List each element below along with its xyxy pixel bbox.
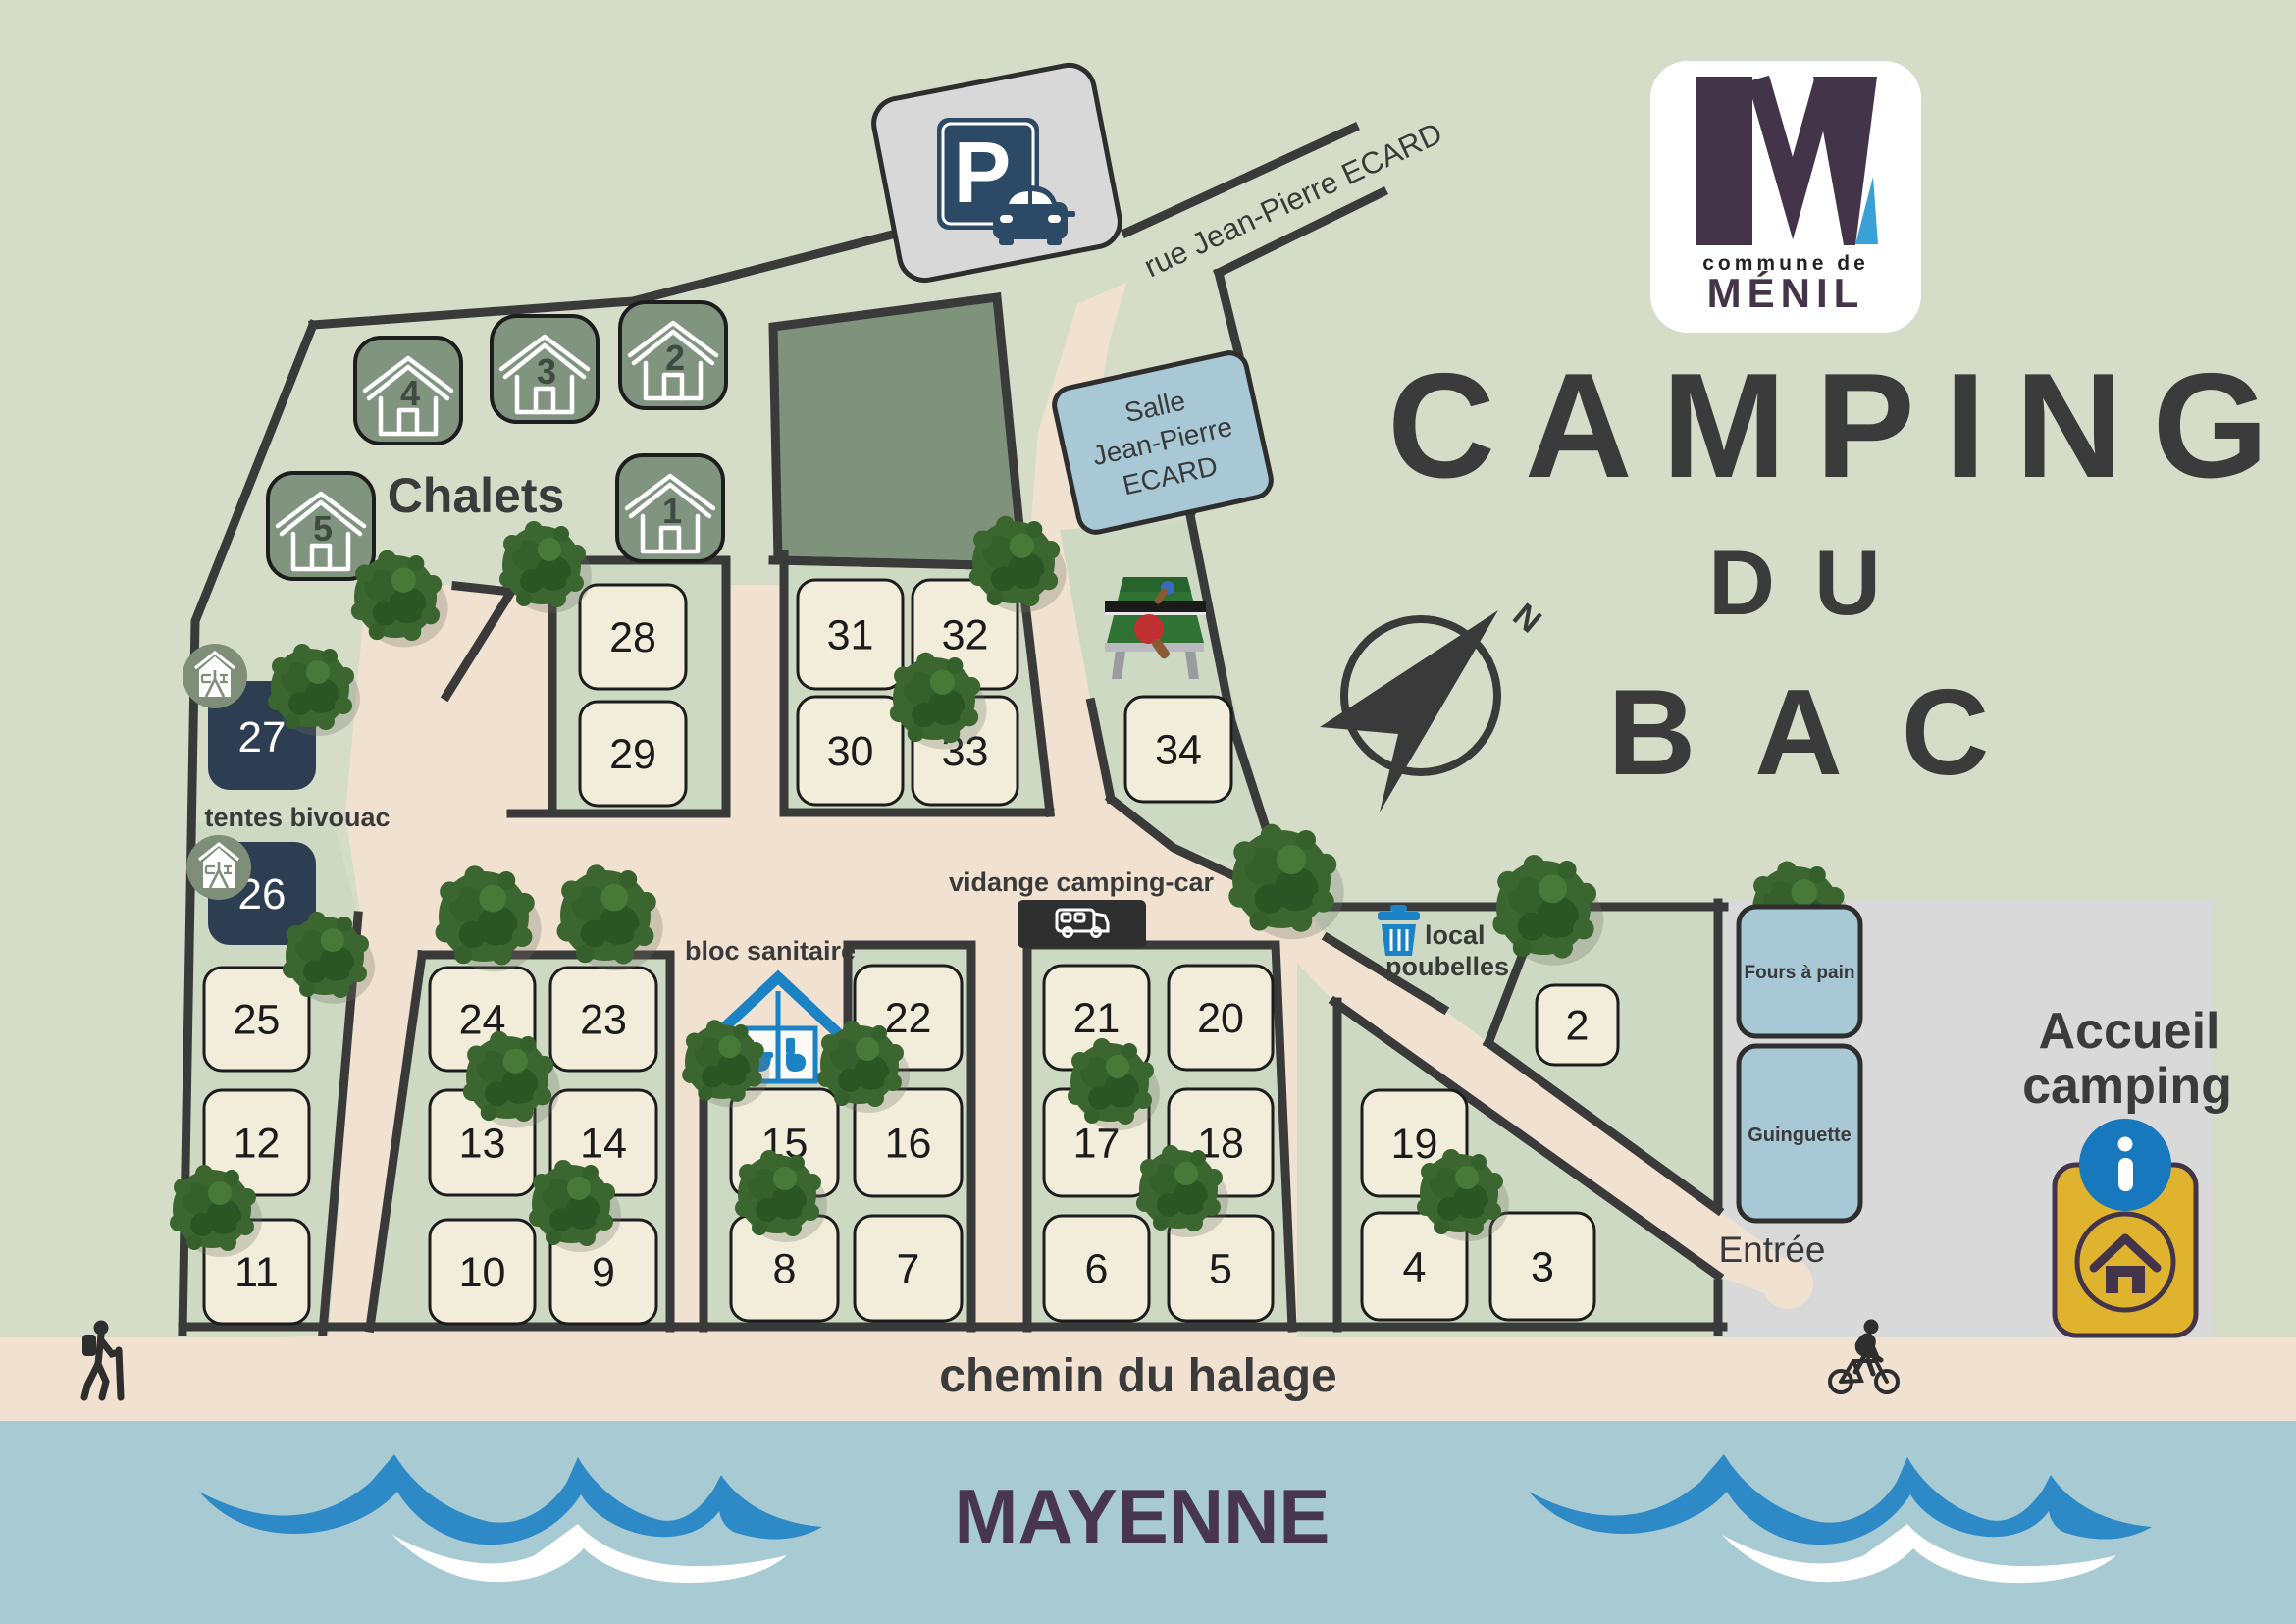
svg-text:13: 13 — [459, 1121, 506, 1168]
svg-text:4: 4 — [400, 373, 420, 413]
svg-text:32: 32 — [942, 612, 989, 659]
svg-text:BAC: BAC — [1608, 665, 2049, 801]
svg-text:Fours à pain: Fours à pain — [1745, 963, 1855, 983]
svg-text:1: 1 — [662, 491, 682, 531]
svg-text:19: 19 — [1391, 1121, 1438, 1168]
svg-text:Chalets: Chalets — [388, 468, 565, 523]
svg-text:27: 27 — [238, 713, 287, 761]
svg-text:3: 3 — [537, 351, 556, 392]
svg-text:12: 12 — [234, 1121, 281, 1168]
svg-text:7: 7 — [897, 1246, 920, 1293]
svg-text:23: 23 — [580, 997, 627, 1044]
svg-text:poubelles: poubelles — [1385, 952, 1509, 981]
svg-text:MÉNIL: MÉNIL — [1707, 270, 1865, 316]
svg-text:local: local — [1425, 920, 1486, 950]
svg-text:30: 30 — [827, 728, 874, 775]
svg-text:22: 22 — [885, 995, 932, 1042]
svg-text:MAYENNE: MAYENNE — [955, 1473, 1331, 1559]
svg-text:4: 4 — [1403, 1244, 1427, 1291]
svg-text:16: 16 — [885, 1121, 932, 1168]
svg-text:20: 20 — [1197, 995, 1244, 1042]
svg-text:34: 34 — [1155, 727, 1202, 774]
svg-text:2: 2 — [1566, 1003, 1590, 1050]
svg-text:31: 31 — [827, 612, 874, 659]
svg-text:CAMPING: CAMPING — [1387, 342, 2296, 509]
svg-text:14: 14 — [580, 1121, 627, 1168]
svg-text:5: 5 — [1209, 1246, 1232, 1293]
svg-text:Guinguette: Guinguette — [1748, 1125, 1852, 1146]
svg-text:29: 29 — [609, 731, 656, 778]
svg-text:Entrée: Entrée — [1718, 1230, 1825, 1270]
svg-text:8: 8 — [773, 1246, 797, 1293]
svg-text:6: 6 — [1085, 1246, 1109, 1293]
svg-text:21: 21 — [1073, 995, 1121, 1042]
svg-text:25: 25 — [234, 997, 281, 1044]
svg-text:camping: camping — [2022, 1058, 2232, 1115]
svg-text:vidange camping-car: vidange camping-car — [949, 867, 1215, 897]
svg-text:tentes bivouac: tentes bivouac — [204, 803, 390, 832]
svg-text:3: 3 — [1531, 1244, 1554, 1291]
svg-text:chemin du halage: chemin du halage — [939, 1350, 1336, 1402]
svg-text:Accueil: Accueil — [2039, 1003, 2220, 1060]
svg-text:bloc sanitaire: bloc sanitaire — [685, 936, 856, 966]
svg-text:10: 10 — [459, 1249, 506, 1296]
svg-text:9: 9 — [592, 1249, 615, 1296]
svg-text:5: 5 — [313, 508, 333, 549]
svg-text:2: 2 — [665, 338, 685, 378]
svg-text:28: 28 — [609, 614, 656, 661]
svg-text:11: 11 — [235, 1249, 279, 1296]
svg-text:DU: DU — [1708, 531, 1920, 634]
